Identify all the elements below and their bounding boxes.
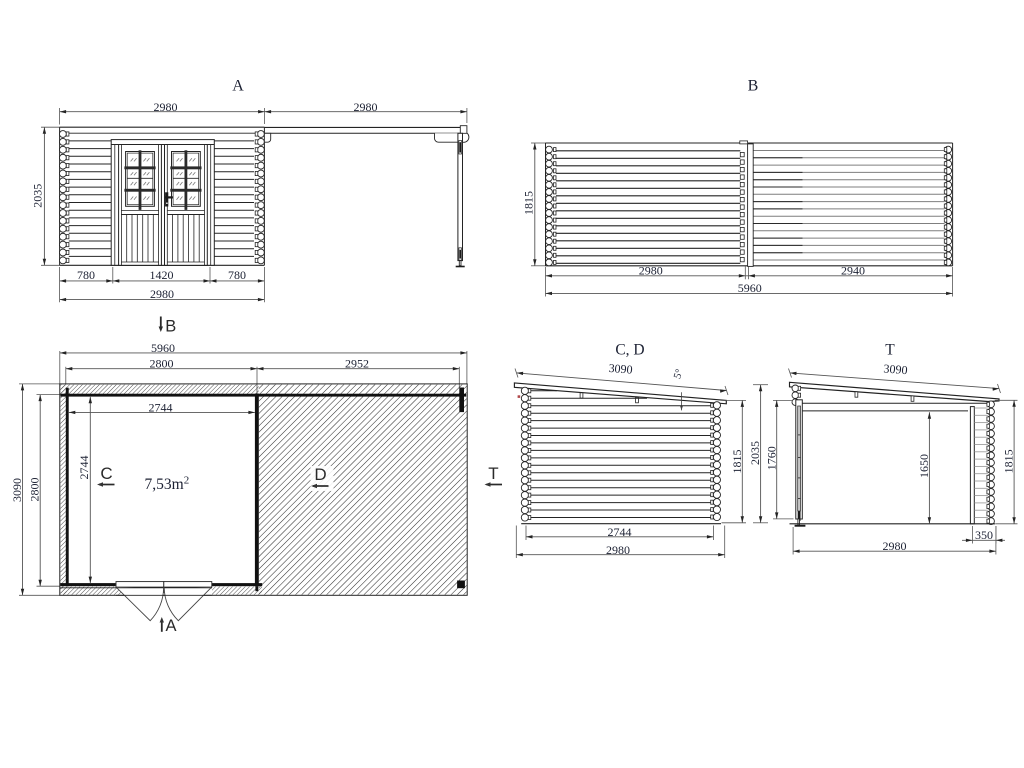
svg-text:2035: 2035 <box>31 184 45 208</box>
svg-text:2980: 2980 <box>639 263 663 277</box>
svg-text:C: C <box>100 464 112 483</box>
svg-text:5960: 5960 <box>151 341 175 355</box>
svg-text:5960: 5960 <box>738 281 762 295</box>
svg-text:1815: 1815 <box>1002 449 1016 473</box>
svg-text:2980: 2980 <box>883 539 907 553</box>
svg-text:780: 780 <box>228 268 246 282</box>
svg-text:2744: 2744 <box>608 525 632 539</box>
svg-text:2744: 2744 <box>77 456 91 480</box>
svg-text:2940: 2940 <box>841 263 865 277</box>
svg-text:3090: 3090 <box>608 361 633 377</box>
svg-text:A: A <box>232 78 244 95</box>
svg-text:2035: 2035 <box>748 441 762 465</box>
svg-text:1815: 1815 <box>730 450 744 474</box>
svg-text:1815: 1815 <box>521 191 535 215</box>
svg-text:C, D: C, D <box>615 342 644 359</box>
svg-text:3090: 3090 <box>883 361 908 377</box>
svg-text:B: B <box>165 318 176 336</box>
svg-text:2800: 2800 <box>27 478 41 502</box>
svg-text:1420: 1420 <box>150 268 174 282</box>
svg-text:B: B <box>748 78 759 95</box>
svg-text:2800: 2800 <box>150 357 174 371</box>
svg-text:2980: 2980 <box>150 287 174 301</box>
svg-text:1760: 1760 <box>764 446 778 470</box>
svg-text:3090: 3090 <box>10 478 24 502</box>
svg-text:1650: 1650 <box>917 454 931 478</box>
svg-text:2980: 2980 <box>354 100 378 114</box>
svg-text:T: T <box>488 464 498 483</box>
svg-text:D: D <box>314 465 326 484</box>
svg-text:780: 780 <box>77 268 95 282</box>
svg-text:A: A <box>165 617 176 635</box>
svg-text:350: 350 <box>975 528 993 542</box>
svg-text:7,53m2: 7,53m2 <box>145 475 190 494</box>
svg-text:2744: 2744 <box>149 401 173 415</box>
svg-text:2980: 2980 <box>154 100 178 114</box>
svg-text:T: T <box>885 342 895 359</box>
svg-text:2980: 2980 <box>606 543 630 557</box>
svg-text:2952: 2952 <box>345 357 369 371</box>
